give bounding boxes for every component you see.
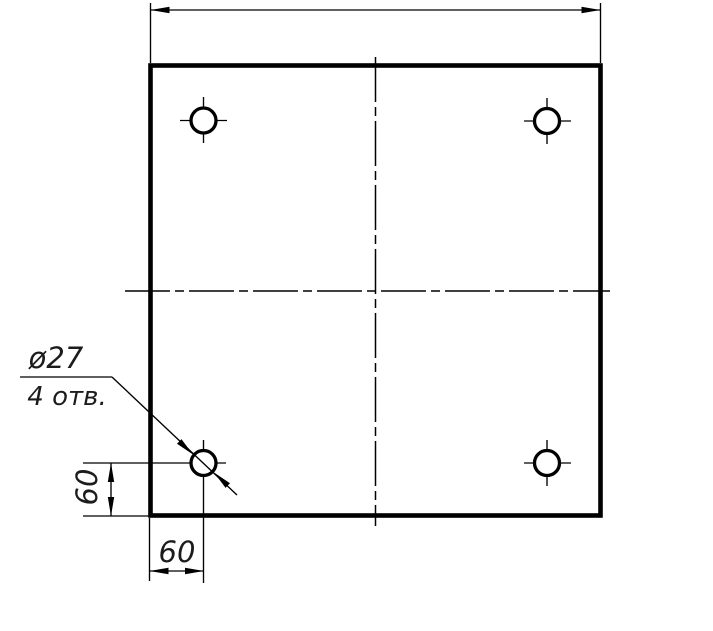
arrowhead-right-icon <box>582 7 601 13</box>
dimension-overall-width <box>151 3 601 63</box>
dimension-hole-offset-horizontal: 60 <box>150 518 205 581</box>
hole-circle <box>191 108 216 133</box>
dimension-value-horizontal: 60 <box>159 535 196 569</box>
arrowhead-up-icon <box>108 463 114 482</box>
hole-circle <box>535 109 560 134</box>
arrowhead-down-icon <box>108 497 114 516</box>
dimension-value-vertical: 60 <box>70 469 104 506</box>
technical-drawing-canvas: 60 60 ø27 4 отв. <box>0 0 713 631</box>
dimension-hole-offset-vertical: 60 <box>70 463 150 516</box>
callout-diameter-text: ø27 <box>28 341 84 375</box>
callout-hole-count-text: 4 отв. <box>27 382 106 412</box>
arrowhead-left-icon <box>151 7 170 13</box>
hole-circle <box>535 451 560 476</box>
plate-drawing-svg: 60 60 ø27 4 отв. <box>0 0 713 631</box>
